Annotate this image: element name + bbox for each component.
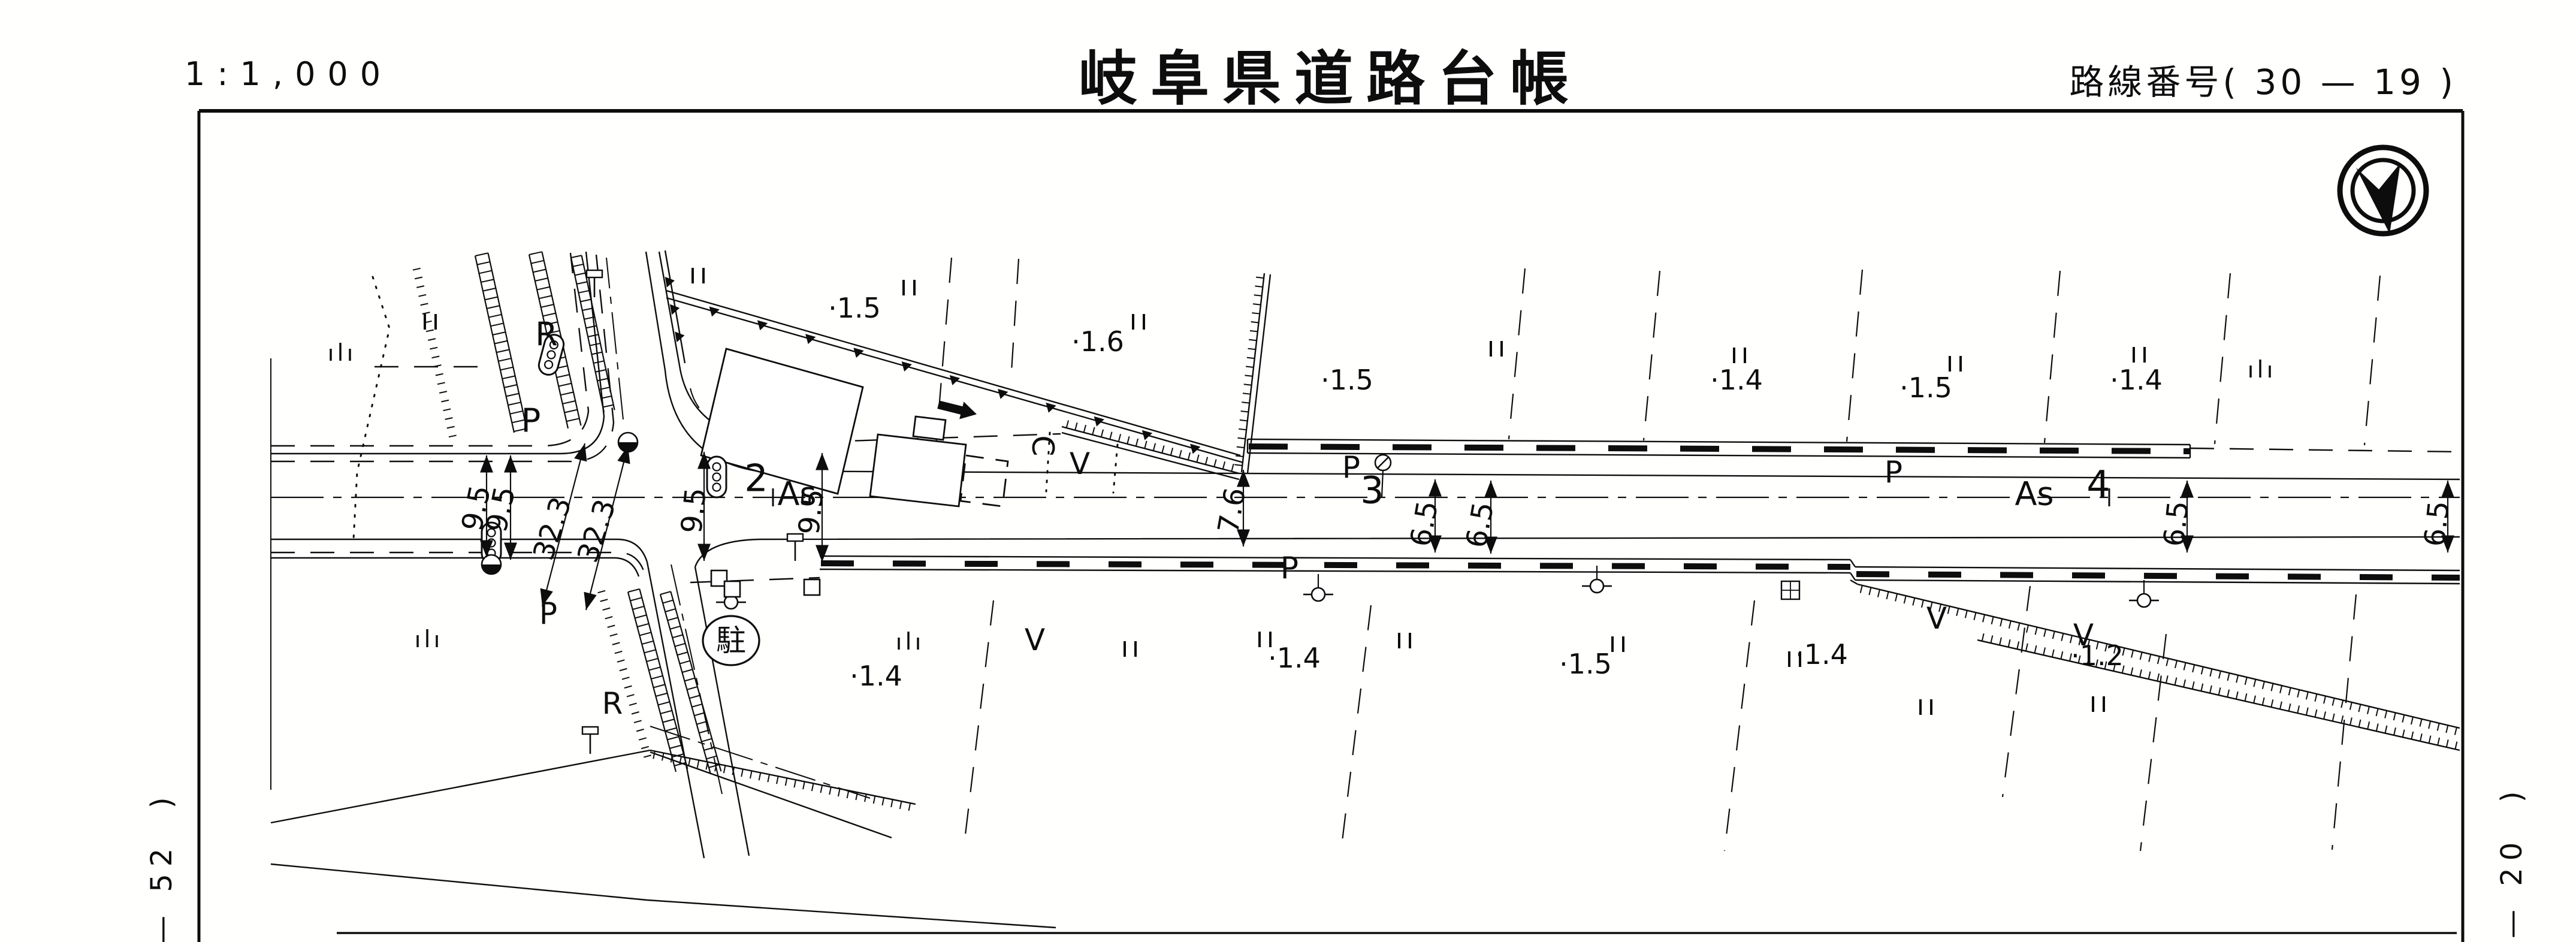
paddy-mark-icon: [1399, 633, 1410, 648]
retaining-wall-rung: [499, 358, 511, 361]
retaining-wall-rung: [529, 252, 542, 255]
retaining-wall-rung: [576, 282, 587, 284]
slope-tick: [1153, 443, 1155, 451]
map-glyph: [482, 564, 501, 574]
slope-tick: [1240, 420, 1248, 421]
retaining-wall-rung: [697, 721, 707, 724]
retaining-wall-rung: [475, 253, 488, 256]
benchmark-circle-icon: [618, 433, 638, 452]
slope-tick: [430, 348, 437, 349]
fence-triangle: [1142, 430, 1152, 440]
slope-tick: [437, 382, 445, 384]
retaining-wall-rung: [563, 401, 575, 404]
slope-tick: [2236, 692, 2238, 699]
map-label: ·1.2: [2071, 639, 2124, 672]
retaining-wall-rung: [557, 375, 569, 378]
retaining-wall-rung: [704, 747, 714, 750]
slope-tick: [865, 794, 866, 802]
slope-tick: [688, 759, 690, 766]
slope-tick: [768, 774, 769, 782]
retaining-wall-rung: [658, 702, 669, 705]
retaining-wall-rung: [504, 385, 517, 388]
slope-tick: [1922, 600, 1923, 608]
retaining-wall-rung: [558, 384, 571, 387]
retaining-wall-rung: [635, 615, 647, 618]
slope-tick: [2219, 687, 2221, 695]
slope-tick: [418, 295, 426, 297]
slope-tick: [1231, 464, 1233, 472]
slope-tick: [2166, 675, 2168, 683]
slope-tick: [2175, 678, 2177, 686]
building-annex-dashed: [961, 455, 1008, 506]
slope-tick: [2350, 717, 2352, 725]
slope-tick: [624, 686, 632, 688]
map-label: ·1.4: [1268, 642, 1321, 674]
slope-tick: [874, 796, 875, 804]
paddy-mark-icon: [1125, 641, 1136, 657]
slope-tick: [1974, 612, 1976, 620]
fence-triangle: [1046, 403, 1056, 413]
retaining-wall-rung: [651, 676, 663, 679]
slope-tick: [2044, 629, 2046, 637]
slope-tick: [2324, 711, 2326, 719]
retaining-wall-rung: [597, 379, 608, 381]
slope-tick: [2306, 692, 2308, 700]
paddy-mark-icon: [2093, 696, 2104, 712]
slope-tick: [2402, 715, 2404, 723]
retaining-wall-rung: [537, 287, 549, 290]
slope-tick: [2061, 651, 2062, 659]
retaining-wall-rung: [493, 332, 505, 335]
slope-tick: [1248, 349, 1256, 349]
retaining-wall-rung: [672, 635, 682, 638]
pole-icon: [582, 727, 598, 754]
slope-tick: [2438, 723, 2439, 731]
retaining-wall-rung: [694, 712, 705, 715]
retaining-wall-rung: [637, 624, 648, 627]
map-label: P: [1342, 450, 1360, 485]
street-light-icon: [1582, 566, 1612, 593]
retaining-wall-rung: [675, 644, 685, 647]
map-label: C: [1025, 436, 1060, 457]
road-plan-drawing: 9.59.532.332.39.59.57.66.56.56.56.5 234A…: [0, 0, 2576, 942]
map-label: As: [777, 475, 816, 513]
map-label: 3: [1360, 469, 1384, 512]
retaining-wall-rung: [500, 367, 513, 370]
slope-tick: [1067, 420, 1068, 428]
slope-tick: [1254, 295, 1262, 295]
slope-tick: [639, 738, 647, 739]
slope-tick: [1904, 596, 1906, 603]
slope-tick: [443, 409, 451, 410]
slope-tick: [2193, 681, 2194, 689]
map-label: R: [535, 316, 558, 354]
map-label: P: [521, 402, 541, 440]
slope-tick: [2254, 696, 2255, 704]
retaining-wall-rung: [539, 295, 551, 298]
slope-tick: [1239, 429, 1246, 430]
slope-tick: [1214, 459, 1216, 467]
map-glyph: [787, 534, 803, 541]
retaining-wall-rung: [491, 323, 503, 326]
slope-tick: [812, 783, 814, 791]
retaining-wall-rung: [677, 652, 687, 655]
slope-tick: [2018, 623, 2019, 631]
retaining-wall-rung: [603, 405, 614, 407]
paddy-mark-icon: [904, 280, 914, 295]
grass-mark-icon: [2251, 360, 2270, 378]
map-label: ·1.4: [850, 660, 902, 692]
slope-tick: [2193, 665, 2194, 672]
map-label: ·1.5: [1899, 372, 1952, 404]
slope-tick: [1136, 439, 1138, 446]
dimension-value: 6.5: [2418, 499, 2456, 548]
slope-tick: [2394, 712, 2396, 720]
slope-tick: [421, 303, 428, 305]
map-label: 4: [2086, 463, 2110, 506]
slope-tick: [2131, 668, 2133, 675]
retaining-wall-rung: [660, 591, 671, 594]
retaining-wall-rung: [494, 341, 507, 344]
slope-tick: [2035, 645, 2037, 653]
slope-tick: [2280, 702, 2282, 709]
slope-tick: [1913, 598, 1914, 606]
retaining-wall-rung: [682, 669, 692, 672]
retaining-wall-rung: [680, 661, 690, 664]
fence-triangle: [998, 389, 1008, 399]
slope-tick: [2201, 684, 2203, 692]
slope-tick: [2403, 730, 2405, 738]
slope-tick: [1236, 456, 1243, 457]
slope-tick: [1237, 447, 1245, 448]
slope-tick: [1991, 635, 1992, 643]
retaining-wall-rung: [483, 288, 496, 291]
map-glyph: [1312, 588, 1325, 601]
slope-tick: [2009, 621, 2011, 629]
slope-tick: [2333, 698, 2335, 706]
slope-tick: [2376, 724, 2378, 732]
fence-triangle: [805, 334, 816, 344]
slope-tick: [2324, 696, 2326, 704]
retaining-wall-rung: [502, 376, 515, 379]
retaining-wall-rung: [508, 402, 521, 405]
slope-tick: [1171, 448, 1173, 455]
slope-tick: [1234, 464, 1242, 465]
retaining-wall-rung: [709, 765, 719, 768]
fence-triangle: [902, 361, 912, 372]
slope-tick: [612, 642, 620, 644]
slope-tick: [662, 753, 664, 761]
slope-tick: [1144, 441, 1146, 449]
street-light-icon: [1303, 574, 1333, 601]
slope-tick: [2271, 699, 2273, 707]
slope-tick: [1878, 590, 1880, 597]
slope-tick: [2394, 727, 2396, 735]
map-label: ·1.6: [1071, 325, 1124, 358]
map-label: ·1.4: [1795, 638, 1848, 671]
slope-tick: [1084, 425, 1086, 433]
slope-tick: [2455, 727, 2457, 735]
retaining-wall-rung: [670, 745, 681, 748]
slope-tick: [891, 799, 893, 807]
slope-tick: [1119, 434, 1121, 442]
slope-tick: [1242, 402, 1249, 403]
slope-tick: [2227, 690, 2229, 698]
north-arrow-icon: [2340, 147, 2426, 234]
retaining-wall-rung: [575, 273, 585, 276]
retaining-wall-rung: [668, 736, 679, 739]
retaining-wall-rung: [535, 278, 548, 281]
map-glyph: [2137, 594, 2151, 607]
slope-tick: [2289, 704, 2291, 711]
slope-tick: [803, 781, 805, 789]
slope-tick: [2140, 669, 2142, 677]
slope-tick: [2026, 644, 2028, 651]
slope-tick: [2201, 667, 2203, 675]
square-marker-icon: [804, 579, 820, 595]
slope-tick: [2429, 736, 2431, 744]
slope-tick: [1256, 277, 1264, 277]
slope-tick: [2184, 663, 2186, 671]
retaining-wall-rung: [590, 343, 600, 346]
retaining-wall-rung: [663, 719, 674, 722]
slope-tick: [441, 400, 449, 402]
slope-tick: [447, 427, 455, 428]
slope-tick: [2385, 711, 2387, 718]
retaining-wall-rung: [665, 728, 677, 731]
slope-tick: [2254, 680, 2255, 687]
dimension-value: 7.6: [1212, 485, 1252, 536]
retaining-wall-rung: [564, 410, 577, 413]
dimension-value: 6.5: [1460, 500, 1500, 551]
slope-tick: [2350, 702, 2352, 710]
slope-tick: [1247, 358, 1255, 358]
map-label: V: [1070, 446, 1090, 481]
retaining-wall-rung: [654, 684, 665, 687]
paddy-mark-icon: [1920, 699, 1931, 715]
retaining-wall-rung: [487, 306, 499, 309]
retaining-wall-rung: [663, 600, 673, 603]
building-outline: [913, 416, 946, 440]
retaining-wall-rail: [639, 589, 687, 769]
map-label: As: [2015, 475, 2053, 513]
dimension-value: 6.5: [1404, 499, 1445, 549]
map-label: ·1.5: [1559, 648, 1612, 680]
slope-tick: [1251, 322, 1259, 322]
slope-tick: [2411, 732, 2413, 739]
slope-tick: [2341, 700, 2343, 708]
slope-tick: [603, 608, 611, 610]
slope-tick: [750, 771, 752, 778]
retaining-wall-rung: [647, 659, 658, 662]
map-label: R: [602, 686, 623, 721]
retaining-wall-rung: [649, 667, 660, 670]
slope-tick: [2245, 677, 2247, 685]
map-label: V: [1926, 601, 1947, 636]
grass-mark-icon: [331, 343, 350, 361]
retaining-wall-rung: [560, 392, 573, 395]
slope-tick: [900, 801, 902, 809]
retaining-wall-rung: [665, 609, 675, 612]
slope-tick: [2271, 684, 2273, 692]
retaining-wall-rung: [692, 704, 702, 707]
retaining-wall-rung: [581, 300, 591, 302]
slope-tick: [620, 669, 627, 671]
slope-tick: [2306, 708, 2308, 715]
slope-tick: [2367, 721, 2369, 729]
map-label: ·1.4: [2110, 364, 2163, 396]
map-glyph: [582, 727, 598, 734]
slope-tick: [2053, 632, 2055, 639]
slope-tick: [2315, 694, 2317, 702]
slope-tick: [1244, 384, 1252, 385]
map-label: 駐: [716, 623, 746, 658]
retaining-wall-rung: [684, 678, 694, 681]
slope-tick: [1223, 461, 1225, 469]
retaining-wall-rung: [656, 693, 667, 696]
slope-tick: [1243, 393, 1251, 394]
slope-tick: [1895, 594, 1897, 602]
slope-tick: [1092, 427, 1094, 435]
retaining-wall-rung: [670, 626, 680, 629]
slope-tick: [617, 660, 625, 662]
retaining-wall-rung: [477, 262, 490, 265]
retaining-wall-rung: [588, 334, 599, 337]
slope-tick: [415, 277, 422, 279]
slope-tick: [1956, 608, 1958, 616]
retaining-wall-rung: [566, 418, 579, 421]
grid-square-icon: [1781, 581, 1799, 599]
slope-tick: [2341, 715, 2343, 723]
slope-tick: [1237, 438, 1245, 439]
slope-tick: [2289, 688, 2291, 696]
slope-tick: [821, 785, 823, 793]
retaining-wall-rung: [497, 349, 509, 352]
slope-tick: [2149, 654, 2151, 662]
retaining-wall-rung: [596, 370, 606, 372]
slope-tick: [1245, 375, 1252, 376]
retaining-wall-rung: [481, 279, 494, 282]
map-glyph: [587, 270, 602, 277]
paddy-mark-icon: [1950, 356, 1961, 372]
slope-tick: [1255, 286, 1263, 286]
slope-tick: [622, 677, 630, 679]
retaining-wall-rung: [644, 650, 656, 653]
building-outline: [870, 434, 966, 506]
slope-tick: [2000, 619, 2002, 627]
slope-tick: [1179, 450, 1181, 458]
slope-tick: [610, 634, 618, 636]
slope-tick: [1188, 452, 1190, 460]
slope-tick: [1127, 436, 1129, 444]
paddy-mark-icon: [1133, 314, 1144, 330]
slope-tick: [600, 599, 608, 601]
map-label: ·1.4: [1710, 364, 1763, 396]
grass-mark-icon: [899, 632, 918, 650]
retaining-wall-rung: [506, 394, 519, 397]
slope-tick: [1253, 304, 1261, 304]
slope-tick: [794, 780, 796, 787]
slope-tick: [1948, 606, 1950, 614]
slope-tick: [1197, 455, 1198, 463]
slope-tick: [1075, 422, 1077, 430]
slope-tick: [2315, 709, 2317, 717]
slope-tick: [882, 798, 884, 805]
slope-tick: [2175, 660, 2177, 668]
slope-tick: [598, 591, 606, 593]
slope-tick: [2149, 672, 2151, 680]
retaining-wall-rung: [489, 315, 502, 318]
slope-tick: [413, 268, 421, 270]
map-glyph: [1590, 579, 1603, 593]
retaining-wall-rung: [633, 606, 644, 609]
road-linework: [271, 250, 2460, 928]
slope-tick: [1249, 340, 1257, 340]
slope-tick: [2280, 686, 2282, 693]
dimension-value: 6.5: [2157, 499, 2196, 548]
retaining-wall-rung: [531, 261, 543, 264]
retaining-wall-rung: [706, 756, 717, 759]
map-label: P: [1885, 455, 1902, 490]
paddy-mark-icon: [1734, 348, 1745, 363]
retaining-wall-rung: [541, 304, 554, 307]
slope-tick: [1965, 611, 1967, 618]
slope-tick: [697, 760, 699, 768]
slope-tick: [641, 747, 649, 748]
retaining-wall-rung: [642, 641, 653, 644]
slope-tick: [2027, 625, 2028, 633]
retaining-wall-rung: [579, 291, 590, 293]
retaining-wall-rail: [628, 592, 676, 772]
retaining-wall-rung: [630, 597, 642, 600]
slope-tick: [786, 778, 787, 786]
slope-tick: [445, 418, 453, 419]
slope-tick: [2061, 633, 2063, 641]
slope-tick: [439, 391, 447, 393]
paddy-mark-icon: [1612, 636, 1623, 652]
slope-tick: [2333, 714, 2335, 721]
slope-tick: [432, 356, 440, 358]
retaining-wall-rung: [702, 739, 712, 742]
slope-tick: [2009, 639, 2010, 647]
fence-triangle: [757, 320, 768, 330]
slope-tick: [2429, 721, 2430, 729]
slope-tick: [2052, 650, 2054, 657]
slope-tick: [2036, 627, 2037, 635]
slope-tick: [2420, 719, 2422, 727]
slope-tick: [627, 695, 635, 696]
slope-tick: [1869, 587, 1871, 595]
fence-triangle: [709, 306, 720, 316]
slope-tick: [449, 435, 457, 437]
slope-tick: [434, 365, 442, 367]
slope-tick: [1982, 633, 1984, 641]
slope-tick: [2131, 650, 2133, 658]
retaining-wall-rung: [533, 269, 546, 272]
dimension-value: 32.3: [571, 496, 623, 567]
slope-tick: [1992, 617, 1994, 624]
slope-tick: [629, 704, 637, 705]
slope-tick: [608, 626, 615, 627]
slope-tick: [644, 755, 651, 757]
retaining-wall-rung: [628, 589, 639, 592]
slope-tick: [724, 765, 726, 773]
slope-tick: [615, 651, 623, 653]
slope-tick: [1246, 366, 1254, 367]
slope-tick: [2184, 680, 2185, 687]
paddy-mark-icon: [2134, 347, 2145, 363]
slope-tick: [847, 790, 849, 798]
